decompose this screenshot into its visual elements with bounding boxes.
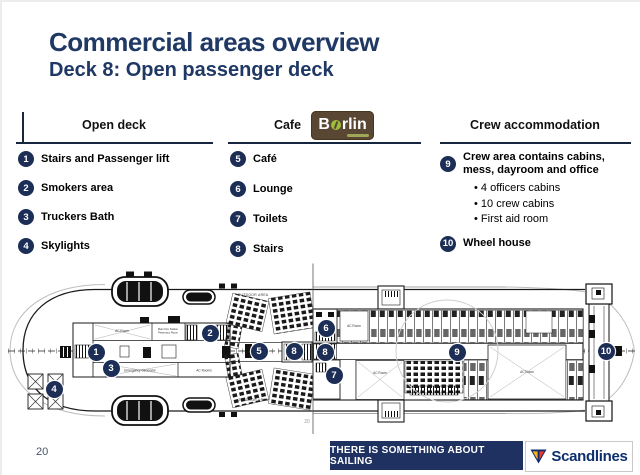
legend-number-badge: 6: [230, 181, 246, 197]
legend-item-3: 3Truckers Bath: [18, 209, 169, 225]
berlin-logo: Brlin: [311, 111, 374, 140]
plan-marker-10: 10: [598, 343, 615, 360]
footer-tagline: THERE IS SOMETHING ABOUT SAILING: [330, 441, 523, 470]
legend-item-10: 10Wheel house: [440, 236, 636, 252]
legend-item-2: 2Smokers area: [18, 180, 169, 196]
legend-item-label: Wheel house: [463, 237, 531, 250]
fire-station-label-2: Pharmacy Room: [158, 331, 179, 335]
legend-item-label: Crew area contains cabins, mess, dayroom…: [463, 151, 615, 177]
fire-station-label-1: Main Fire Station: [158, 327, 179, 331]
legend-item-4: 4Skylights: [18, 238, 169, 254]
legend-item-label: Truckers Bath: [41, 211, 114, 224]
legend-number-badge: 3: [18, 209, 34, 225]
emergency-generator-label: Emergency Generator: [124, 369, 156, 373]
page-subtitle: Deck 8: Open passenger deck: [49, 59, 334, 82]
legend-number-badge: 8: [230, 241, 246, 257]
cafe-header-label: Cafe: [274, 118, 301, 132]
scandlines-pennant-icon: [530, 449, 547, 464]
plan-marker-2: 2: [202, 325, 219, 342]
frame-note: 20: [304, 419, 310, 425]
legend-item-1: 1Stairs and Passenger lift: [18, 151, 169, 167]
stair-house-bottom-icon: [378, 400, 404, 422]
cafe-underline: [228, 142, 421, 144]
crew-underline: [440, 142, 631, 144]
plan-marker-8: 8: [286, 343, 303, 360]
legend-number-badge: 4: [18, 238, 34, 254]
legend-item-label: Toilets: [253, 213, 288, 226]
legend-open-deck: 1Stairs and Passenger lift2Smokers area3…: [18, 151, 169, 267]
legend-number-badge: 10: [440, 236, 456, 252]
plan-marker-8: 8: [317, 344, 334, 361]
berlin-logo-letters-rlin: rlin: [342, 116, 367, 134]
legend-bullet: First aid room: [474, 212, 636, 228]
legend-number-badge: 7: [230, 211, 246, 227]
lifeboat-bottom-small-icon: [183, 398, 215, 412]
coffee-bean-icon: [331, 120, 341, 130]
plan-marker-6: 6: [318, 320, 335, 337]
winch-icon: [60, 346, 71, 358]
open-deck-underline: [16, 142, 213, 144]
slide: Commercial areas overview Deck 8: Open p…: [0, 0, 640, 475]
legend-item-label: Smokers area: [41, 182, 113, 195]
legend-item-label: Stairs and Passenger lift: [41, 153, 169, 166]
legend-sub-bullets: 4 officers cabins10 crew cabinsFirst aid…: [474, 181, 636, 228]
legend-item-6: 6Lounge: [230, 181, 293, 197]
plan-marker-3: 3: [103, 360, 120, 377]
page-title: Commercial areas overview: [49, 27, 379, 58]
legend-item-label: Café: [253, 153, 277, 166]
column-header-crew: Crew accommodation: [440, 108, 630, 142]
scandlines-logo: Scandlines: [525, 441, 633, 472]
legend-number-badge: 2: [18, 180, 34, 196]
legend-item-5: 5Café: [230, 151, 293, 167]
plan-marker-7: 7: [326, 367, 343, 384]
legend-item-9: 9Crew area contains cabins, mess, dayroo…: [440, 151, 636, 177]
legend-item-label: Skylights: [41, 240, 90, 253]
scandlines-wordmark: Scandlines: [551, 448, 627, 465]
legend-item-7: 7Toilets: [230, 211, 293, 227]
column-header-cafe: Cafe Brlin: [228, 108, 420, 142]
stair-house-top-icon: [378, 286, 404, 309]
legend-bullet: 10 crew cabins: [474, 197, 636, 213]
lifeboat-top-small-icon: [183, 290, 215, 304]
lifeboat-bottom-large-icon: [112, 396, 168, 425]
legend-number-badge: 9: [440, 156, 456, 172]
legend-crew: 9Crew area contains cabins, mess, dayroo…: [440, 151, 636, 256]
legend-number-badge: 1: [18, 151, 34, 167]
ac-room-aft-label: AC Room: [115, 329, 129, 333]
legend-bullet: 4 officers cabins: [474, 181, 636, 197]
legend-number-badge: 5: [230, 151, 246, 167]
plan-marker-1: 1: [88, 344, 105, 361]
legend-item-label: Stairs: [253, 243, 284, 256]
ac-room-cafe-label: AC Room: [347, 324, 361, 328]
ac-room-mid-label: AC Room: [373, 371, 387, 375]
berlin-logo-tagline: [347, 134, 369, 137]
legend-item-label: Lounge: [253, 183, 293, 196]
column-header-open-deck: Open deck: [16, 108, 212, 142]
outdoor-area-label-bottom: OUTDOOR AREA: [238, 398, 269, 402]
plan-marker-9: 9: [449, 344, 466, 361]
outdoor-area-label-top: OUTDOOR AREA: [238, 293, 269, 297]
ac-rooms-label: AC Rooms: [196, 369, 212, 373]
legend-item-8: 8Stairs: [230, 241, 293, 257]
plan-marker-5: 5: [251, 343, 268, 360]
ac-room-crew-label: AC Room: [520, 370, 534, 374]
plan-marker-4: 4: [46, 381, 63, 398]
lifeboat-top-large-icon: [112, 272, 168, 307]
legend-cafe: 5Café6Lounge7Toilets8Stairs: [230, 151, 293, 271]
berlin-logo-letter-b: B: [318, 116, 330, 134]
page-number: 20: [36, 446, 48, 458]
